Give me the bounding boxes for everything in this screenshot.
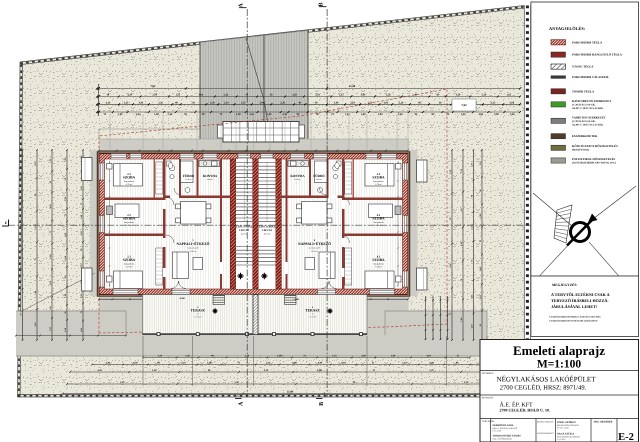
svg-text:LÉPCSŐ: LÉPCSŐ xyxy=(239,228,249,232)
svg-text:2,10: 2,10 xyxy=(315,94,320,97)
svg-text:1,64: 1,64 xyxy=(249,113,254,116)
svg-text:1,00: 1,00 xyxy=(461,113,466,116)
svg-text:2,10: 2,10 xyxy=(350,101,355,104)
svg-text:NAGY ATTILA: NAGY ATTILA xyxy=(557,433,574,436)
svg-text:2700 CEGLÉD, HOLD U. 10.: 2700 CEGLÉD, HOLD U. 10. xyxy=(500,408,551,413)
svg-text:SZOBA: SZOBA xyxy=(123,176,136,180)
svg-text:1,485: 1,485 xyxy=(277,355,283,358)
svg-text:kerámia: kerámia xyxy=(207,178,213,181)
svg-text:TARTÓSZERKEZET: TARTÓSZERKEZET xyxy=(537,432,554,435)
svg-text:ÉPÍTÉSZ TERVEZŐ: ÉPÍTÉSZ TERVEZŐ xyxy=(537,421,554,424)
svg-text:FASZERKEZETEK: FASZERKEZETEK xyxy=(572,134,598,138)
svg-text:7,62: 7,62 xyxy=(461,103,467,107)
svg-text:1,80: 1,80 xyxy=(378,113,383,116)
svg-text:3,04: 3,04 xyxy=(139,101,144,104)
svg-text:8,79 m²: 8,79 m² xyxy=(375,266,382,269)
svg-text:3,29: 3,29 xyxy=(456,94,461,97)
svg-text:2,89: 2,89 xyxy=(361,355,366,358)
svg-text:kerámia: kerámia xyxy=(294,178,300,181)
svg-text:A TARTÓSZERKEZETTI MŰSZAKI LEÍ: A TARTÓSZERKEZETTI MŰSZAKI LEÍRÁSÁBAN xyxy=(549,320,598,323)
svg-text:2700 CEGLÉD, HRSZ: 8971/49.: 2700 CEGLÉD, HRSZ: 8971/49. xyxy=(500,384,587,392)
svg-text:2,26: 2,26 xyxy=(399,101,404,104)
svg-text:8,79 m²: 8,79 m² xyxy=(126,224,133,227)
svg-text:1,25: 1,25 xyxy=(368,101,373,104)
svg-text:POROTHERM VÁLASZFAL: POROTHERM VÁLASZFAL xyxy=(572,75,609,79)
svg-text:FÜRDŐ: FÜRDŐ xyxy=(313,174,325,178)
svg-text:A TARTÓSZERKEZETEKKEL LÁTHATÓ: A TARTÓSZERKEZETEKKEL LÁTHATÓ LAKÓ MÉG xyxy=(549,316,601,319)
svg-text:NÉGYLAKÁSOS LAKÓÉPÜLET: NÉGYLAKÁSOS LAKÓÉPÜLET xyxy=(497,375,597,384)
svg-text:ÉPÍTMÉNY:: ÉPÍTMÉNY: xyxy=(482,372,494,375)
svg-text:NAPPALI+ÉTKEZŐ: NAPPALI+ÉTKEZŐ xyxy=(298,241,331,246)
svg-text:17,76 m²: 17,76 m² xyxy=(194,316,202,319)
svg-text:2,26: 2,26 xyxy=(280,101,285,104)
svg-text:1,00: 1,00 xyxy=(118,113,123,116)
svg-text:SZABÓTH LAJOS: SZABÓTH LAJOS xyxy=(493,423,514,427)
svg-text:ANYAGJELÖLÉS:: ANYAGJELÖLÉS: xyxy=(549,26,586,31)
svg-text:VASBETON SZERKEZET: VASBETON SZERKEZET xyxy=(572,116,606,120)
svg-text:SZOBA: SZOBA xyxy=(372,217,385,221)
svg-text:POLISZTIROL HŐSZIGETELÉS: POLISZTIROL HŐSZIGETELÉS xyxy=(572,157,616,161)
svg-text:2,26: 2,26 xyxy=(158,101,163,104)
svg-text:2,10: 2,10 xyxy=(464,381,469,384)
svg-text:3,29: 3,29 xyxy=(97,369,102,372)
svg-text:lam.parketta: lam.parketta xyxy=(124,221,134,224)
svg-text:SZOBA: SZOBA xyxy=(123,258,136,262)
svg-text:B: B xyxy=(319,2,325,6)
svg-text:TERVEZŐK:: TERVEZŐK: xyxy=(482,420,495,423)
svg-text:2,10: 2,10 xyxy=(106,101,111,104)
svg-text:1,25: 1,25 xyxy=(339,94,344,97)
svg-text:É 13-1128: É 13-1128 xyxy=(493,430,501,433)
svg-text:3,29: 3,29 xyxy=(120,381,125,384)
svg-text:3,04: 3,04 xyxy=(341,362,346,365)
svg-text:1,25: 1,25 xyxy=(176,94,181,97)
svg-text:(AUSZTROTHERM XPS-TOP 30, 10%): (AUSZTROTHERM XPS-TOP 30, 10%) xyxy=(572,161,616,164)
svg-text:1,485: 1,485 xyxy=(317,369,323,372)
svg-text:1,25: 1,25 xyxy=(491,101,496,104)
svg-text:1,25: 1,25 xyxy=(124,101,129,104)
svg-text:8,79 m²: 8,79 m² xyxy=(375,224,382,227)
svg-text:±0,00: ±0,00 xyxy=(179,297,185,300)
svg-text:2,10: 2,10 xyxy=(152,94,157,97)
svg-text:POROTHERM HANGGÁTLÓ TÉGLA: POROTHERM HANGGÁTLÓ TÉGLA xyxy=(572,53,623,57)
svg-text:2,26: 2,26 xyxy=(386,94,391,97)
svg-text:laminált padló: laminált padló xyxy=(187,247,199,250)
svg-text:2,10: 2,10 xyxy=(482,94,487,97)
svg-text:1,25: 1,25 xyxy=(332,355,337,358)
svg-text:2,89: 2,89 xyxy=(292,362,297,365)
svg-text:SZOBA: SZOBA xyxy=(372,176,385,180)
svg-text:8,79 m²: 8,79 m² xyxy=(126,266,133,269)
svg-text:A: A xyxy=(239,3,245,8)
svg-text:Emeleti alaprajz: Emeleti alaprajz xyxy=(513,343,605,358)
svg-text:1,80: 1,80 xyxy=(494,113,499,116)
svg-text:fa: fa xyxy=(197,313,199,316)
svg-text:SZOBA: SZOBA xyxy=(372,258,385,262)
svg-text:1,25: 1,25 xyxy=(507,94,512,97)
svg-text:4,15 m²: 4,15 m² xyxy=(264,233,271,236)
svg-text:41,48: 41,48 xyxy=(349,85,356,88)
svg-text:3,04: 3,04 xyxy=(426,355,431,358)
svg-text:lam.parketta: lam.parketta xyxy=(373,180,383,183)
svg-text:YTONG TÉGLA: YTONG TÉGLA xyxy=(572,65,594,69)
svg-text:3,29: 3,29 xyxy=(105,362,110,365)
svg-text:TT/1É 13-0467: TT/1É 13-0467 xyxy=(557,427,569,430)
svg-text:G 13-0789: G 13-0789 xyxy=(557,438,565,441)
svg-text:1,80: 1,80 xyxy=(267,113,272,116)
svg-text:lam.parketta: lam.parketta xyxy=(124,262,134,265)
svg-text:E-2: E-2 xyxy=(618,432,634,442)
svg-text:3,04: 3,04 xyxy=(509,101,514,104)
svg-text:1,50: 1,50 xyxy=(152,369,157,372)
svg-text:OKL. ÉPÍTŐMÉRNÖK: OKL. ÉPÍTŐMÉRNÖK xyxy=(493,438,513,441)
svg-text:1,80: 1,80 xyxy=(154,113,159,116)
svg-text:TÖMÖR TÉGLA: TÖMÖR TÉGLA xyxy=(572,89,595,93)
svg-text:KŐZETGYAPOT HŐSZIGETELÉS: KŐZETGYAPOT HŐSZIGETELÉS xyxy=(572,144,618,148)
svg-text:3,29: 3,29 xyxy=(292,94,297,97)
svg-text:8,79 m²: 8,79 m² xyxy=(126,183,133,186)
svg-text:8,79 m²: 8,79 m² xyxy=(375,183,382,186)
svg-text:3,04: 3,04 xyxy=(259,101,264,104)
svg-text:1,00: 1,00 xyxy=(345,113,350,116)
svg-text:TERASZ: TERASZ xyxy=(191,309,206,313)
svg-text:A: A xyxy=(238,401,244,406)
svg-text:2,10: 2,10 xyxy=(224,101,229,104)
svg-text:3,29: 3,29 xyxy=(334,101,339,104)
svg-text:lam.parketta: lam.parketta xyxy=(124,180,134,183)
svg-text:21,40: 21,40 xyxy=(287,391,294,394)
svg-text:4,15 m²: 4,15 m² xyxy=(241,233,248,236)
svg-text:1,485: 1,485 xyxy=(207,362,213,365)
svg-text:MEGJEGYZÉS:: MEGJEGYZÉS: xyxy=(552,282,577,287)
svg-text:1,64: 1,64 xyxy=(402,362,407,365)
svg-text:2020. OKTÓBER: 2020. OKTÓBER xyxy=(594,420,613,424)
svg-text:7,62: 7,62 xyxy=(151,85,156,88)
svg-text:SZOBA: SZOBA xyxy=(123,217,136,221)
svg-text:(ROCKWOOL): (ROCKWOOL) xyxy=(572,149,589,152)
svg-text:TOMASOVSZKI TAMÁS: TOMASOVSZKI TAMÁS xyxy=(493,434,522,438)
svg-text:1,25: 1,25 xyxy=(429,369,434,372)
svg-text:NAPPALI+ÉTKEZŐ: NAPPALI+ÉTKEZŐ xyxy=(177,241,210,246)
svg-text:3,29: 3,29 xyxy=(210,101,215,104)
svg-text:KAVICSBETON SZERKEZET: KAVICSBETON SZERKEZET xyxy=(572,99,611,103)
svg-text:B: B xyxy=(319,402,325,406)
svg-text:fa: fa xyxy=(312,313,314,316)
svg-text:LÉPCSŐ: LÉPCSŐ xyxy=(262,228,272,232)
svg-text:1,50: 1,50 xyxy=(185,355,190,358)
svg-text:lam.parketta: lam.parketta xyxy=(373,262,383,265)
svg-text:kerámia: kerámia xyxy=(316,178,322,181)
svg-text:1,25: 1,25 xyxy=(241,101,246,104)
svg-text:1,25: 1,25 xyxy=(266,362,271,365)
svg-text:ÉPÍTTETŐ:: ÉPÍTTETŐ: xyxy=(482,397,494,400)
svg-text:A TERVTŐL ELTÉRNI CSAK A: A TERVTŐL ELTÉRNI CSAK A xyxy=(551,292,610,297)
svg-text:FÜRDŐ: FÜRDŐ xyxy=(183,174,195,178)
svg-text:1,64: 1,64 xyxy=(361,113,366,116)
svg-text:2,46: 2,46 xyxy=(510,113,515,116)
svg-text:2,10: 2,10 xyxy=(264,369,269,372)
svg-text:33,94 m²: 33,94 m² xyxy=(189,250,197,253)
svg-text:3,29: 3,29 xyxy=(127,94,132,97)
svg-text:1,64: 1,64 xyxy=(136,113,141,116)
svg-text:2,46: 2,46 xyxy=(398,113,403,116)
svg-text:1,64: 1,64 xyxy=(479,113,484,116)
svg-text:3,04: 3,04 xyxy=(199,94,204,97)
svg-text:3,29: 3,29 xyxy=(158,355,163,358)
svg-text:TERVEZŐ ÍRÁSBELI HOZZÁ-: TERVEZŐ ÍRÁSBELI HOZZÁ- xyxy=(551,298,609,303)
svg-text:1,00: 1,00 xyxy=(236,113,241,116)
svg-text:17,76 m²: 17,76 m² xyxy=(309,316,317,319)
svg-text:JÁRULÁSÁVAL LEHET!: JÁRULÁSÁVAL LEHET! xyxy=(551,304,598,309)
svg-text:33,94 m²: 33,94 m² xyxy=(311,250,319,253)
svg-text:1,00: 1,00 xyxy=(391,355,396,358)
svg-text:KONYHA: KONYHA xyxy=(203,174,218,178)
svg-text:2,10: 2,10 xyxy=(181,362,186,365)
svg-text:KONYHA: KONYHA xyxy=(290,174,305,178)
svg-text:2,26: 2,26 xyxy=(429,362,434,365)
svg-text:M=1:100: M=1:100 xyxy=(537,359,581,371)
svg-text:lam.parketta: lam.parketta xyxy=(373,221,383,224)
svg-text:ZÖLD GYÖRGY: ZÖLD GYÖRGY xyxy=(557,420,576,424)
svg-text:2,46: 2,46 xyxy=(168,113,173,116)
svg-text:1,00: 1,00 xyxy=(318,362,323,365)
svg-text:+1,88: +1,88 xyxy=(293,298,299,301)
svg-text:ALAP: C 30/37-XC2-32-KK): ALAP: C 30/37-XC2-32-KK) xyxy=(572,107,603,110)
svg-text:1,50: 1,50 xyxy=(234,381,239,384)
svg-text:kerámia: kerámia xyxy=(185,178,191,181)
svg-text:POROTHERM TÉGLA: POROTHERM TÉGLA xyxy=(572,40,603,44)
svg-text:2,26: 2,26 xyxy=(223,94,228,97)
svg-text:laminált padló: laminált padló xyxy=(309,247,321,250)
svg-text:3,04: 3,04 xyxy=(361,94,366,97)
svg-text:1,50: 1,50 xyxy=(133,362,138,365)
svg-text:ALAP: C 30/37-XC2-32-KK): ALAP: C 30/37-XC2-32-KK) xyxy=(572,123,603,126)
svg-text:3,04: 3,04 xyxy=(384,101,389,104)
svg-text:TERASZ: TERASZ xyxy=(305,309,320,313)
